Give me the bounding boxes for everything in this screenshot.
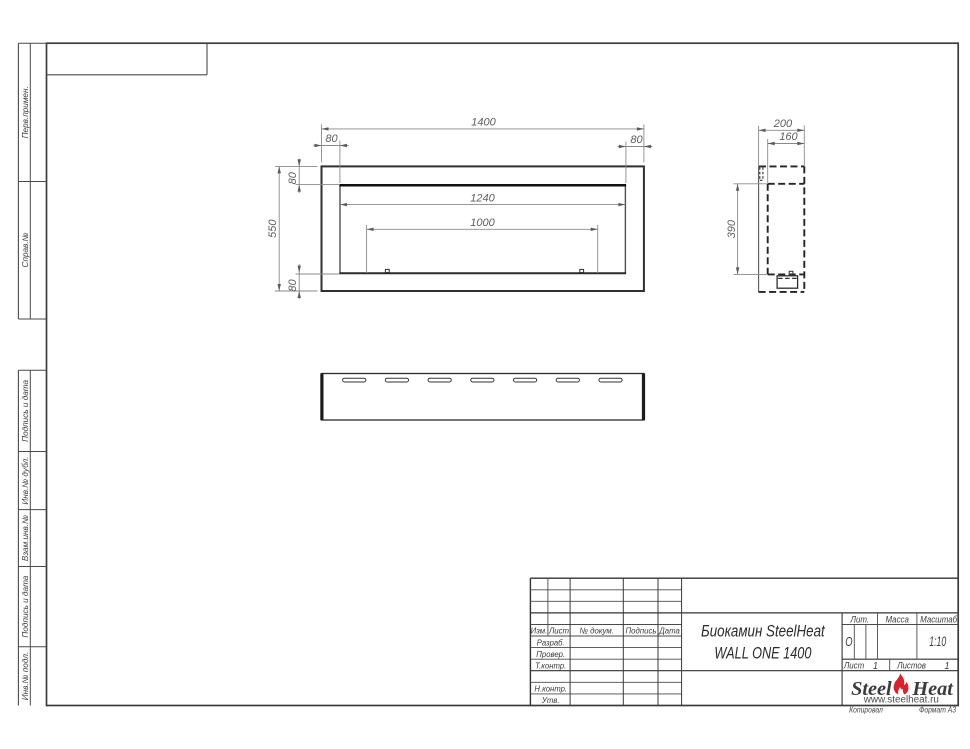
svg-text:80: 80: [287, 171, 299, 184]
svg-text:1000: 1000: [470, 217, 495, 229]
svg-text:1240: 1240: [470, 192, 495, 204]
svg-text:1: 1: [945, 660, 950, 672]
svg-text:№ докум.: № докум.: [579, 626, 613, 635]
svg-text:Н.контр.: Н.контр.: [534, 684, 567, 693]
svg-text:Взам.инв.№: Взам.инв.№: [21, 515, 30, 561]
svg-text:Разраб.: Разраб.: [537, 638, 565, 647]
svg-text:1:10: 1:10: [929, 634, 946, 650]
svg-text:О: О: [845, 635, 852, 649]
svg-text:80: 80: [325, 133, 338, 145]
svg-text:Провер.: Провер.: [536, 650, 565, 659]
svg-text:Изм.: Изм.: [531, 626, 548, 635]
svg-text:1400: 1400: [471, 116, 496, 128]
svg-text:Подпись и дата: Подпись и дата: [21, 575, 30, 637]
svg-text:200: 200: [773, 118, 793, 130]
svg-text:550: 550: [267, 219, 279, 238]
svg-text:390: 390: [726, 219, 738, 238]
svg-text:WALL ONE 1400: WALL ONE 1400: [714, 645, 812, 663]
svg-text:80: 80: [287, 279, 299, 292]
svg-text:Подпись и дата: Подпись и дата: [21, 379, 30, 441]
svg-text:Подпись: Подпись: [626, 626, 657, 635]
svg-text:1: 1: [873, 660, 878, 672]
svg-text:Дата: Дата: [658, 626, 680, 635]
svg-text:Масштаб: Масштаб: [920, 614, 957, 625]
svg-text:80: 80: [630, 134, 643, 146]
svg-text:Копировал: Копировал: [849, 705, 883, 715]
svg-text:Лит.: Лит.: [850, 614, 869, 625]
svg-text:Формат А3: Формат А3: [919, 705, 957, 715]
svg-text:Листов: Листов: [896, 660, 926, 671]
svg-text:Т.контр.: Т.контр.: [535, 661, 566, 670]
svg-text:Масса: Масса: [886, 614, 910, 625]
svg-text:Утв.: Утв.: [541, 696, 560, 705]
svg-text:160: 160: [779, 131, 798, 143]
svg-text:Инв.№ дубл.: Инв.№ дубл.: [21, 457, 30, 505]
svg-text:Лист: Лист: [843, 660, 864, 671]
svg-text:Перв.примен.: Перв.примен.: [21, 86, 30, 138]
svg-text:Справ.№: Справ.№: [21, 232, 30, 267]
svg-text:Лист: Лист: [548, 626, 569, 635]
svg-text:Инв.№ подл.: Инв.№ подл.: [21, 652, 30, 701]
svg-text:Биокамин SteelHeat: Биокамин SteelHeat: [701, 622, 825, 641]
